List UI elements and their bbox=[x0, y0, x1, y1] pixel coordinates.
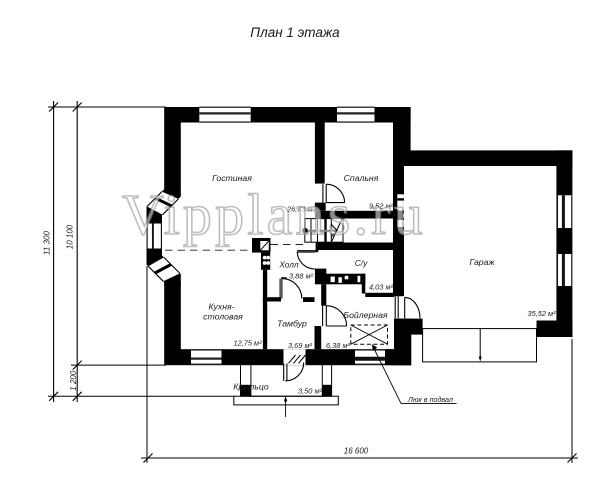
svg-text:столовая: столовая bbox=[203, 312, 243, 322]
svg-text:Тамбур: Тамбур bbox=[277, 319, 307, 329]
svg-text:Холл: Холл bbox=[278, 260, 299, 270]
svg-text:10 100: 10 100 bbox=[66, 224, 75, 249]
svg-text:11 300: 11 300 bbox=[43, 231, 52, 255]
svg-text:35,52 м²: 35,52 м² bbox=[527, 309, 556, 318]
svg-text:Vipplans.ru: Vipplans.ru bbox=[122, 182, 426, 247]
svg-text:Гараж: Гараж bbox=[470, 257, 496, 267]
svg-text:3,88 м²: 3,88 м² bbox=[289, 272, 314, 281]
svg-text:1 200: 1 200 bbox=[69, 370, 78, 391]
svg-text:3,50 м²: 3,50 м² bbox=[298, 387, 323, 396]
svg-text:Бойлерная: Бойлерная bbox=[343, 310, 387, 320]
svg-text:Крыльцо: Крыльцо bbox=[233, 381, 268, 391]
svg-text:С/у: С/у bbox=[355, 258, 368, 268]
svg-text:12,75 м²: 12,75 м² bbox=[233, 339, 262, 348]
svg-text:16 600: 16 600 bbox=[344, 447, 369, 456]
svg-text:Люк в подвал: Люк в подвал bbox=[407, 395, 453, 404]
svg-text:4,03 м²: 4,03 м² bbox=[369, 283, 394, 292]
svg-text:Кухня-: Кухня- bbox=[208, 302, 234, 312]
svg-text:6,38 м²: 6,38 м² bbox=[326, 341, 351, 350]
svg-text:3,69 м²: 3,69 м² bbox=[288, 341, 313, 350]
svg-text:План 1 этажа: План 1 этажа bbox=[250, 25, 340, 40]
